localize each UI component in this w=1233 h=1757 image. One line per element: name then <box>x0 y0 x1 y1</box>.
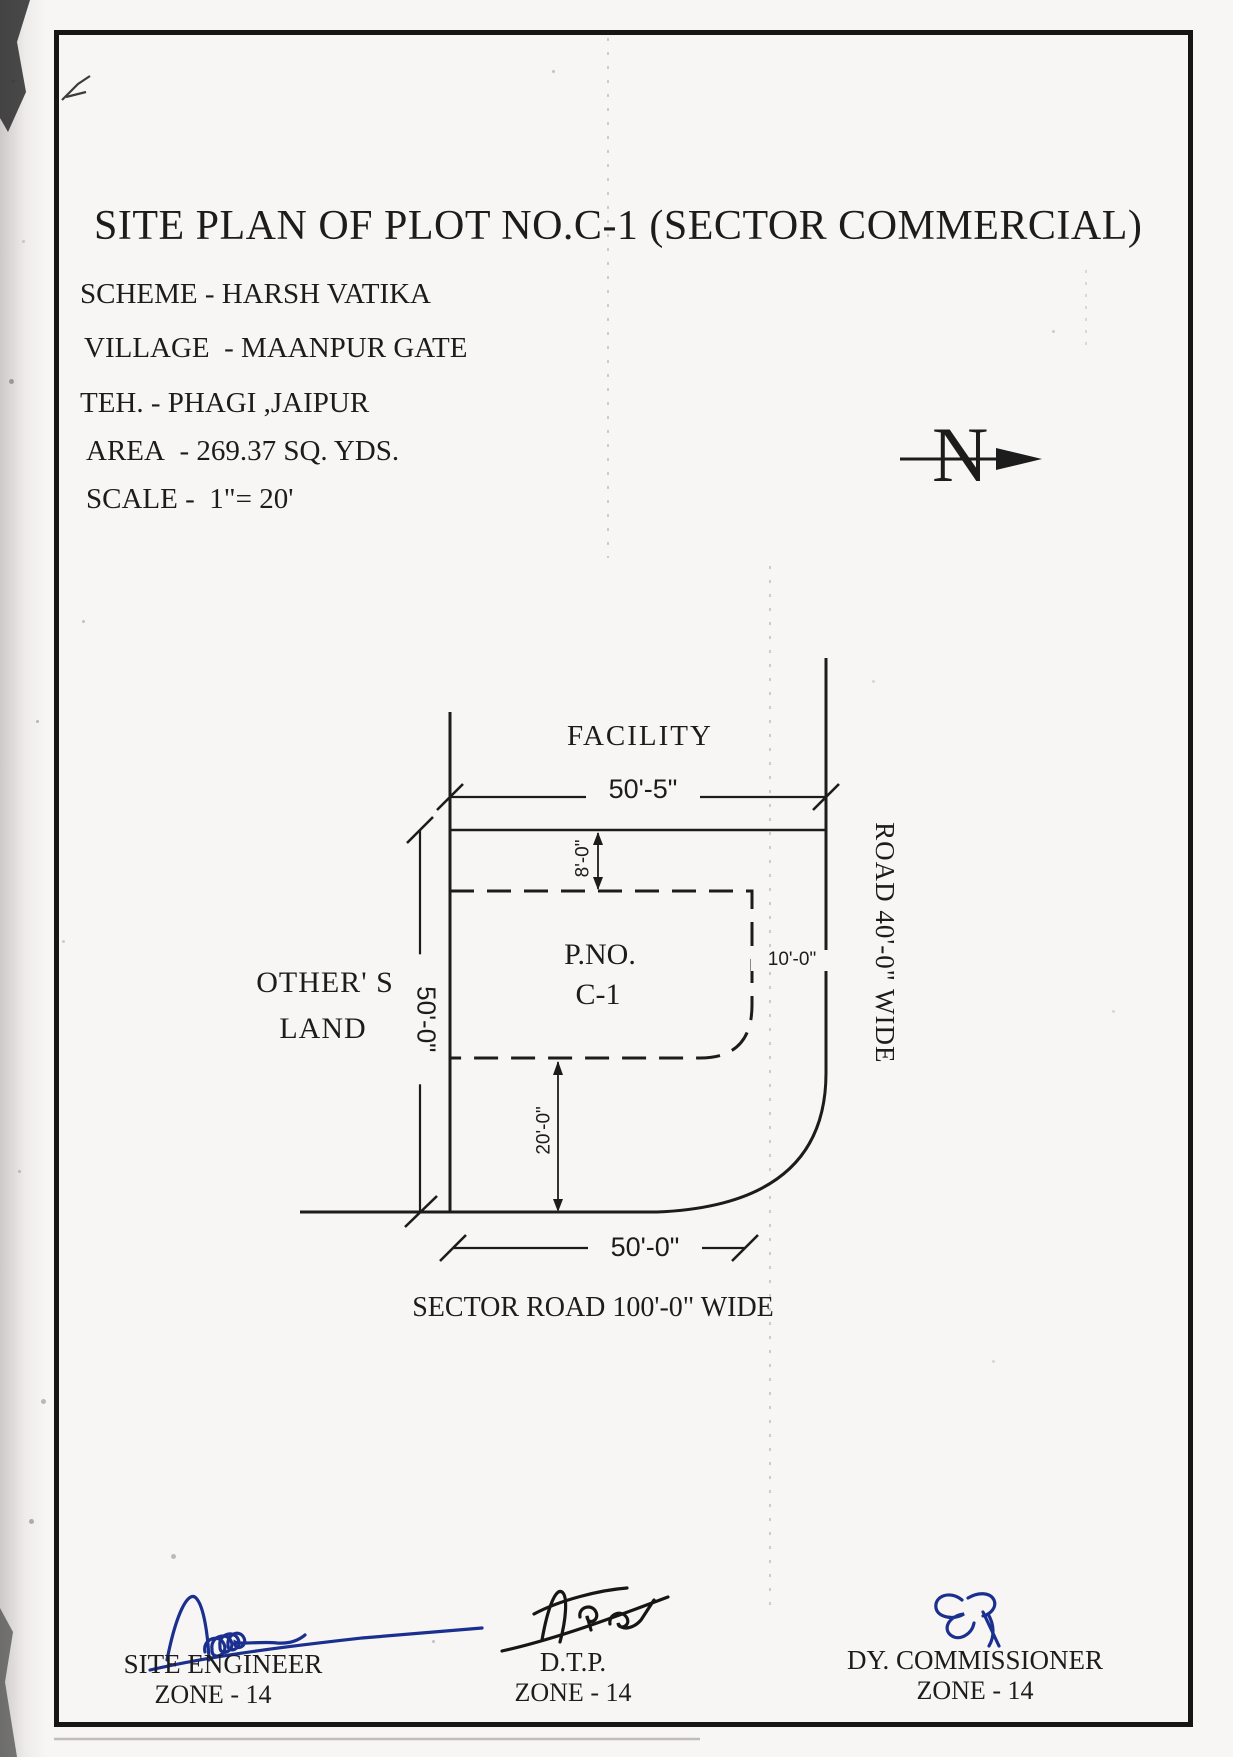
adjacent-land-line1: OTHER' S <box>230 966 420 999</box>
dim-bottom-width: 50'-0" <box>588 1233 702 1263</box>
tehsil-line: TEH. - PHAGI ,JAIPUR <box>80 388 369 420</box>
scheme-line: SCHEME - HARSH VATIKA <box>80 279 431 311</box>
scan-corner-blobs <box>0 0 30 1757</box>
page-title: SITE PLAN OF PLOT NO.C-1 (SECTOR COMMERC… <box>94 203 1142 249</box>
right-road-label: ROAD 40'-0" WIDE <box>869 812 899 1074</box>
dim-left-height: 50'-0" <box>412 954 441 1084</box>
plot-number-line1: P.NO. <box>540 938 660 971</box>
dimension-lines <box>405 784 839 1261</box>
signature-dy-commissioner-squiggle <box>936 1594 999 1646</box>
dim-setback-top: 8'-0" <box>574 818 595 898</box>
signature-title-dy-commissioner: DY. COMMISSIONER <box>800 1646 1150 1676</box>
plot-number-line2: C-1 <box>538 978 658 1011</box>
signature-title-dtp: D.T.P. <box>493 1648 653 1678</box>
signature-zone-dy-commissioner: ZONE - 14 <box>855 1677 1095 1706</box>
scale-line: SCALE - 1"= 20' <box>86 484 293 516</box>
ink-mark <box>62 76 90 100</box>
scanned-site-plan-page: SITE PLAN OF PLOT NO.C-1 (SECTOR COMMERC… <box>0 0 1233 1757</box>
bottom-road-label: SECTOR ROAD 100'-0" WIDE <box>393 1293 793 1324</box>
adjacent-land-line2: LAND <box>228 1012 418 1045</box>
dim-setback-bottom: 20'-0" <box>535 1080 556 1180</box>
village-line: VILLAGE - MAANPUR GATE <box>84 333 467 365</box>
signature-title-site-engineer: SITE ENGINEER <box>103 1650 343 1680</box>
area-line: AREA - 269.37 SQ. YDS. <box>86 436 399 468</box>
signature-zone-site-engineer: ZONE - 14 <box>103 1681 323 1710</box>
signature-zone-dtp: ZONE - 14 <box>473 1679 673 1708</box>
dim-top-width: 50'-5" <box>586 775 700 805</box>
north-label: N <box>932 416 988 494</box>
dim-setback-right: 10'-0" <box>751 950 833 971</box>
plan-drawing-svg <box>0 0 1233 1757</box>
facility-label: FACILITY <box>555 721 725 753</box>
plot-dashed-boundary <box>450 891 752 1058</box>
signature-dtp-squiggle <box>502 1588 668 1651</box>
